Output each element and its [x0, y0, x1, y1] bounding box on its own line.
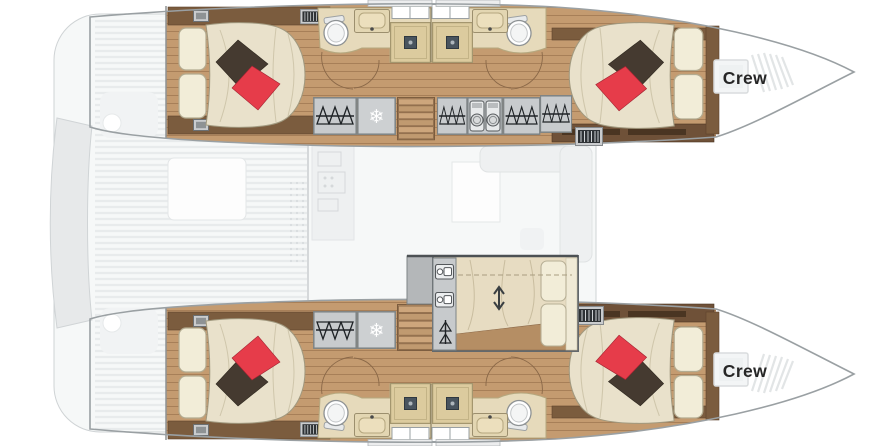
- starboard-hull-extras: [398, 256, 604, 351]
- pillow: [541, 304, 566, 346]
- salon-sofa: [560, 146, 592, 262]
- crew-label-port: Crew: [723, 68, 767, 88]
- mat: [286, 182, 308, 264]
- winch: [103, 114, 121, 132]
- winch: [103, 314, 121, 332]
- cockpit-table: [168, 158, 246, 220]
- salon-seat: [520, 228, 544, 250]
- stair-landing: [407, 256, 433, 304]
- aft-platform: [50, 118, 92, 328]
- pillow: [541, 261, 566, 301]
- center-berth-cabin: [407, 256, 578, 351]
- floor-plan-canvas: ❄: [0, 0, 890, 446]
- crew-label-starboard: Crew: [723, 361, 767, 381]
- catamaran-floor-plan: ❄: [0, 0, 890, 446]
